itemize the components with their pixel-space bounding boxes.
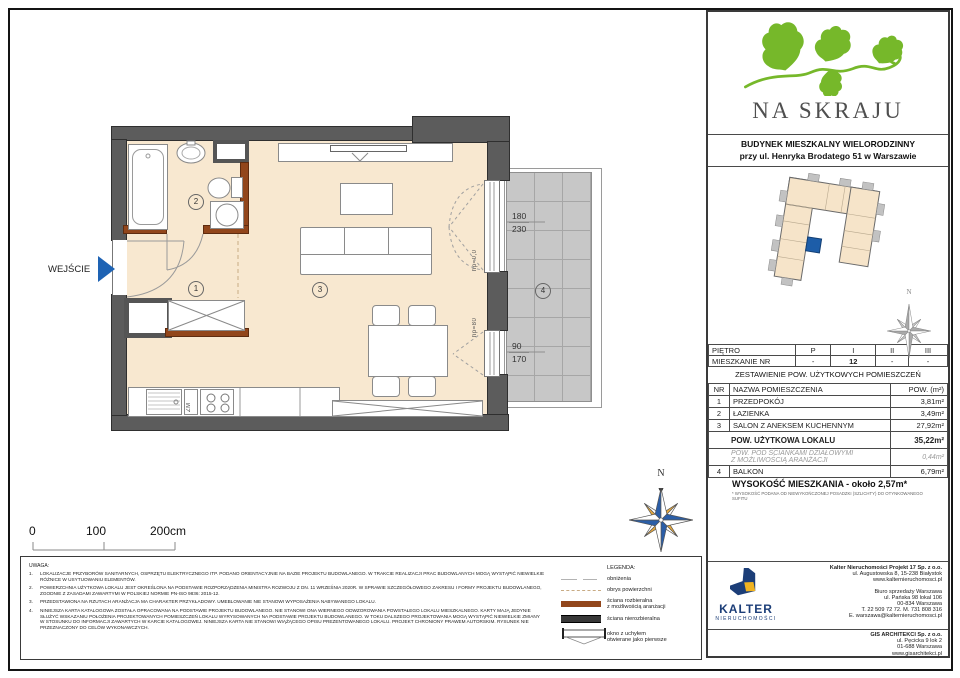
note-item: 1. LOKALIZACJE PRZYBORÓW SANITARNYCH, OS… (29, 571, 545, 582)
coffee-table (340, 183, 393, 215)
site-compass: N (874, 288, 944, 370)
legend: LEGENDA: obniżenia obrys powierzchni (561, 565, 699, 651)
dining-chair (408, 305, 436, 326)
room-area: 3,81m² (891, 396, 948, 408)
legend-title: LEGENDA: (607, 565, 635, 571)
wall-bottom (112, 415, 508, 430)
note-text: NINIEJSZA KARTA KATALOGOWA ZOSTAŁA OPRAC… (40, 608, 545, 630)
gis-address: GIS ARCHITEKCI Sp. z o.o. ul. Pęcicka 9 … (782, 632, 942, 657)
table-row: 2 ŁAZIENKA 3,49m² (709, 408, 948, 420)
kalter-logo-icon (730, 568, 760, 598)
dining-chair (408, 376, 436, 397)
floor-cell: P (796, 345, 831, 356)
legend-item: obrys powierzchni (561, 587, 699, 593)
wall-right-bottom (488, 375, 507, 417)
kalter-wordmark: KALTER (714, 602, 778, 616)
floor-cell: I (831, 345, 876, 356)
website: www.gisarchitekci.pl (782, 651, 942, 657)
row-nr: 3 (709, 420, 730, 432)
dim-230: 230 (509, 223, 529, 234)
balcony-row: 4 BALKON 6,79m² (709, 466, 948, 478)
floor-label: PIĘTRO (709, 345, 796, 356)
note-text: POWIERZCHNIA UŻYTKOWA LOKALU JEST OKREŚL… (40, 585, 545, 596)
legend-label: obrys powierzchni (607, 587, 652, 593)
wall-right-pier (488, 272, 507, 330)
kalter-wordmark-sub: nieruchomości (714, 616, 778, 622)
site-compass-n-label: N (874, 288, 944, 296)
wall-top (112, 127, 415, 140)
sofa (300, 227, 432, 275)
area-table: NR NAZWA POMIESZCZENIA POW. (m²) 1 PRZED… (708, 383, 948, 478)
bathtub-inner (132, 149, 164, 225)
catalog-sheet: ZM (0, 0, 960, 678)
lowered-ceiling-symbol (561, 579, 607, 580)
note-number: 2. (29, 585, 40, 596)
total-value: 35,22m² (891, 432, 948, 449)
legend-label: ściana rozbieralnaz możliwością aranżacj… (607, 598, 665, 610)
note-number: 3. (29, 599, 40, 605)
area-summary-title: ZESTAWIENIE POW. UŻYTKOWYCH POMIESZCZEŃ (708, 370, 948, 379)
note-text: LOKALIZACJE PRZYBORÓW SANITARNYCH, OSPRZ… (40, 571, 545, 582)
header-area: POW. (m²) (891, 384, 948, 396)
note-text: PRZEDSTAWIONA NA RZUTACH ARANŻACJA MA CH… (40, 599, 376, 605)
building-title-line2: przy ul. Henryka Brodatego 51 w Warszawi… (708, 151, 948, 161)
toilet-tank (231, 177, 243, 198)
room-name: ŁAZIENKA (730, 408, 891, 420)
entrance-arrow-icon (98, 256, 115, 282)
room-number-4: 4 (535, 283, 551, 299)
partition-value: 0,44m² (891, 449, 948, 466)
compass-n-label: N (616, 468, 706, 479)
table-row: 1 PRZEDPOKÓJ 3,81m² (709, 396, 948, 408)
wardrobe-dining (332, 400, 483, 417)
building-title-line1: BUDYNEK MIESZKALNY WIELORODZINNY (708, 139, 948, 149)
legend-label: obniżenia (607, 576, 631, 582)
note-item: 4. NINIEJSZA KARTA KATALOGOWA ZOSTAŁA OP… (29, 608, 545, 630)
floor-plan: ZM (0, 0, 706, 540)
row-nr: 4 (709, 466, 730, 478)
room-area: 27,92m² (891, 420, 948, 432)
tilt-window-symbol (561, 628, 607, 646)
height-note: WYSOKOŚĆ MIESZKANIA - około 2,57m* (732, 479, 907, 489)
footer-divider (708, 629, 948, 630)
scale-100: 100 (86, 524, 106, 538)
panel-divider (708, 134, 948, 135)
partition-row: POW. POD ŚCIANKAMI DZIAŁOWYMIZ MOŻLIWOŚC… (709, 449, 948, 466)
dishwasher-label: ZM (186, 392, 192, 412)
sofa-div1 (344, 228, 345, 254)
header-name: NAZWA POMIESZCZENIA (730, 384, 891, 396)
unit-number-cell: 12 (831, 356, 876, 367)
dim-180: 180 (509, 211, 529, 223)
washing-machine (210, 201, 244, 229)
room-name: SALON Z ANEKSEM KUCHENNYM (730, 420, 891, 432)
table-row: 3 SALON Z ANEKSEM KUCHENNYM 27,92m² (709, 420, 948, 432)
room-area: 6,79m² (891, 466, 948, 478)
dim-170: 170 (509, 353, 529, 364)
total-label: POW. UŻYTKOWA LOKALU (709, 432, 891, 449)
table-header-row: NR NAZWA POMIESZCZENIA POW. (m²) (709, 384, 948, 396)
legend-item: okno z uchyłemotwierane jako pierwsze (561, 628, 699, 646)
room-number-1: 1 (188, 281, 204, 297)
room-name: BALKON (730, 466, 891, 478)
room-number-3: 3 (312, 282, 328, 298)
info-panel: NA SKRAJU BUDYNEK MIESZKALNY WIELORODZIN… (706, 10, 950, 658)
room-area: 3,49m² (891, 408, 948, 420)
balcony-window-dim-bottom: 90 170 (509, 341, 529, 364)
panel-divider (708, 166, 948, 167)
notes: UWAGA: 1. LOKALIZACJE PRZYBORÓW SANITARN… (29, 563, 545, 633)
total-row: POW. UŻYTKOWA LOKALU 35,22m² (709, 432, 948, 449)
note-number: 4. (29, 608, 40, 630)
panel-divider (708, 561, 948, 562)
dining-table (368, 325, 448, 377)
window-dining (484, 330, 500, 377)
wardrobe-hall (168, 300, 245, 331)
row-nr: 2 (709, 408, 730, 420)
room-name: PRZEDPOKÓJ (730, 396, 891, 408)
brand-title: NA SKRAJU (708, 98, 948, 124)
wall-left-top (112, 140, 126, 240)
scale-bar: 0 100 200cm (28, 524, 218, 556)
partition-label: POW. POD ŚCIANKAMI DZIAŁOWYMIZ MOŻLIWOŚC… (709, 449, 891, 466)
compass-rose: N (616, 468, 706, 564)
note-item: 2. POWIERZCHNIA UŻYTKOWA LOKALU JEST OKR… (29, 585, 545, 596)
dining-chair (372, 305, 400, 326)
hp-window-label: hp=80 (472, 303, 478, 337)
kalter-address: Kalter Nieruchomości Projekt 17 Sp. z o.… (782, 565, 942, 620)
wall-top-right (413, 117, 509, 142)
shaft-kitchen (124, 298, 172, 338)
removable-wall-symbol (561, 601, 607, 607)
entrance-label: WEJŚCIE (48, 264, 90, 275)
notes-title: UWAGA: (29, 563, 545, 569)
note-item: 3. PRZEDSTAWIONA NA RZUTACH ARANŻACJA MA… (29, 599, 545, 605)
balcony-door (484, 180, 500, 273)
balcony-window-dim-top: 180 230 (509, 211, 529, 234)
scale-200: 200cm (150, 524, 186, 538)
unit-highlight (806, 237, 822, 253)
legend-item: obniżenia (561, 576, 699, 582)
area-outline-symbol (561, 590, 607, 591)
dim-90: 90 (509, 341, 529, 353)
sofa-div2 (388, 228, 389, 254)
legend-item: ściana nierozbieralna (561, 615, 699, 623)
note-number: 1. (29, 571, 40, 582)
room-number-2: 2 (188, 194, 204, 210)
unit-cell: - (796, 356, 831, 367)
compass-rose-icon (619, 478, 703, 562)
fixed-wall-symbol (561, 615, 607, 623)
stove (200, 389, 234, 415)
header-nr: NR (709, 384, 730, 396)
ivy-logo-icon (734, 16, 924, 96)
legend-label: ściana nierozbieralna (607, 616, 660, 622)
row-nr: 1 (709, 396, 730, 408)
height-footnote: * WYSOKOŚĆ PODANA OD NIEWYKOŃCZONEJ POSA… (732, 491, 932, 501)
sofa-seat-line (301, 254, 431, 255)
wall-right-column (488, 142, 509, 180)
legend-item: ściana rozbieralnaz możliwością aranżacj… (561, 598, 699, 610)
email-line: E. warszawa@kalternieruchomosci.pl (782, 613, 942, 619)
kitchen-sink (146, 389, 182, 415)
shaft-bathroom (213, 140, 249, 163)
dining-chair (372, 376, 400, 397)
scale-0: 0 (29, 524, 36, 538)
hp-door-label: hp=0,0 (472, 225, 478, 271)
notes-legend-box: UWAGA: 1. LOKALIZACJE PRZYBORÓW SANITARN… (20, 556, 702, 660)
unit-label: MIESZKANIE NR (709, 356, 796, 367)
legend-label: okno z uchyłemotwierane jako pierwsze (607, 631, 667, 643)
scale-bar-line (28, 540, 218, 554)
legend-title-row: LEGENDA: (561, 565, 699, 571)
tv (330, 145, 407, 152)
site-compass-icon (877, 296, 941, 366)
